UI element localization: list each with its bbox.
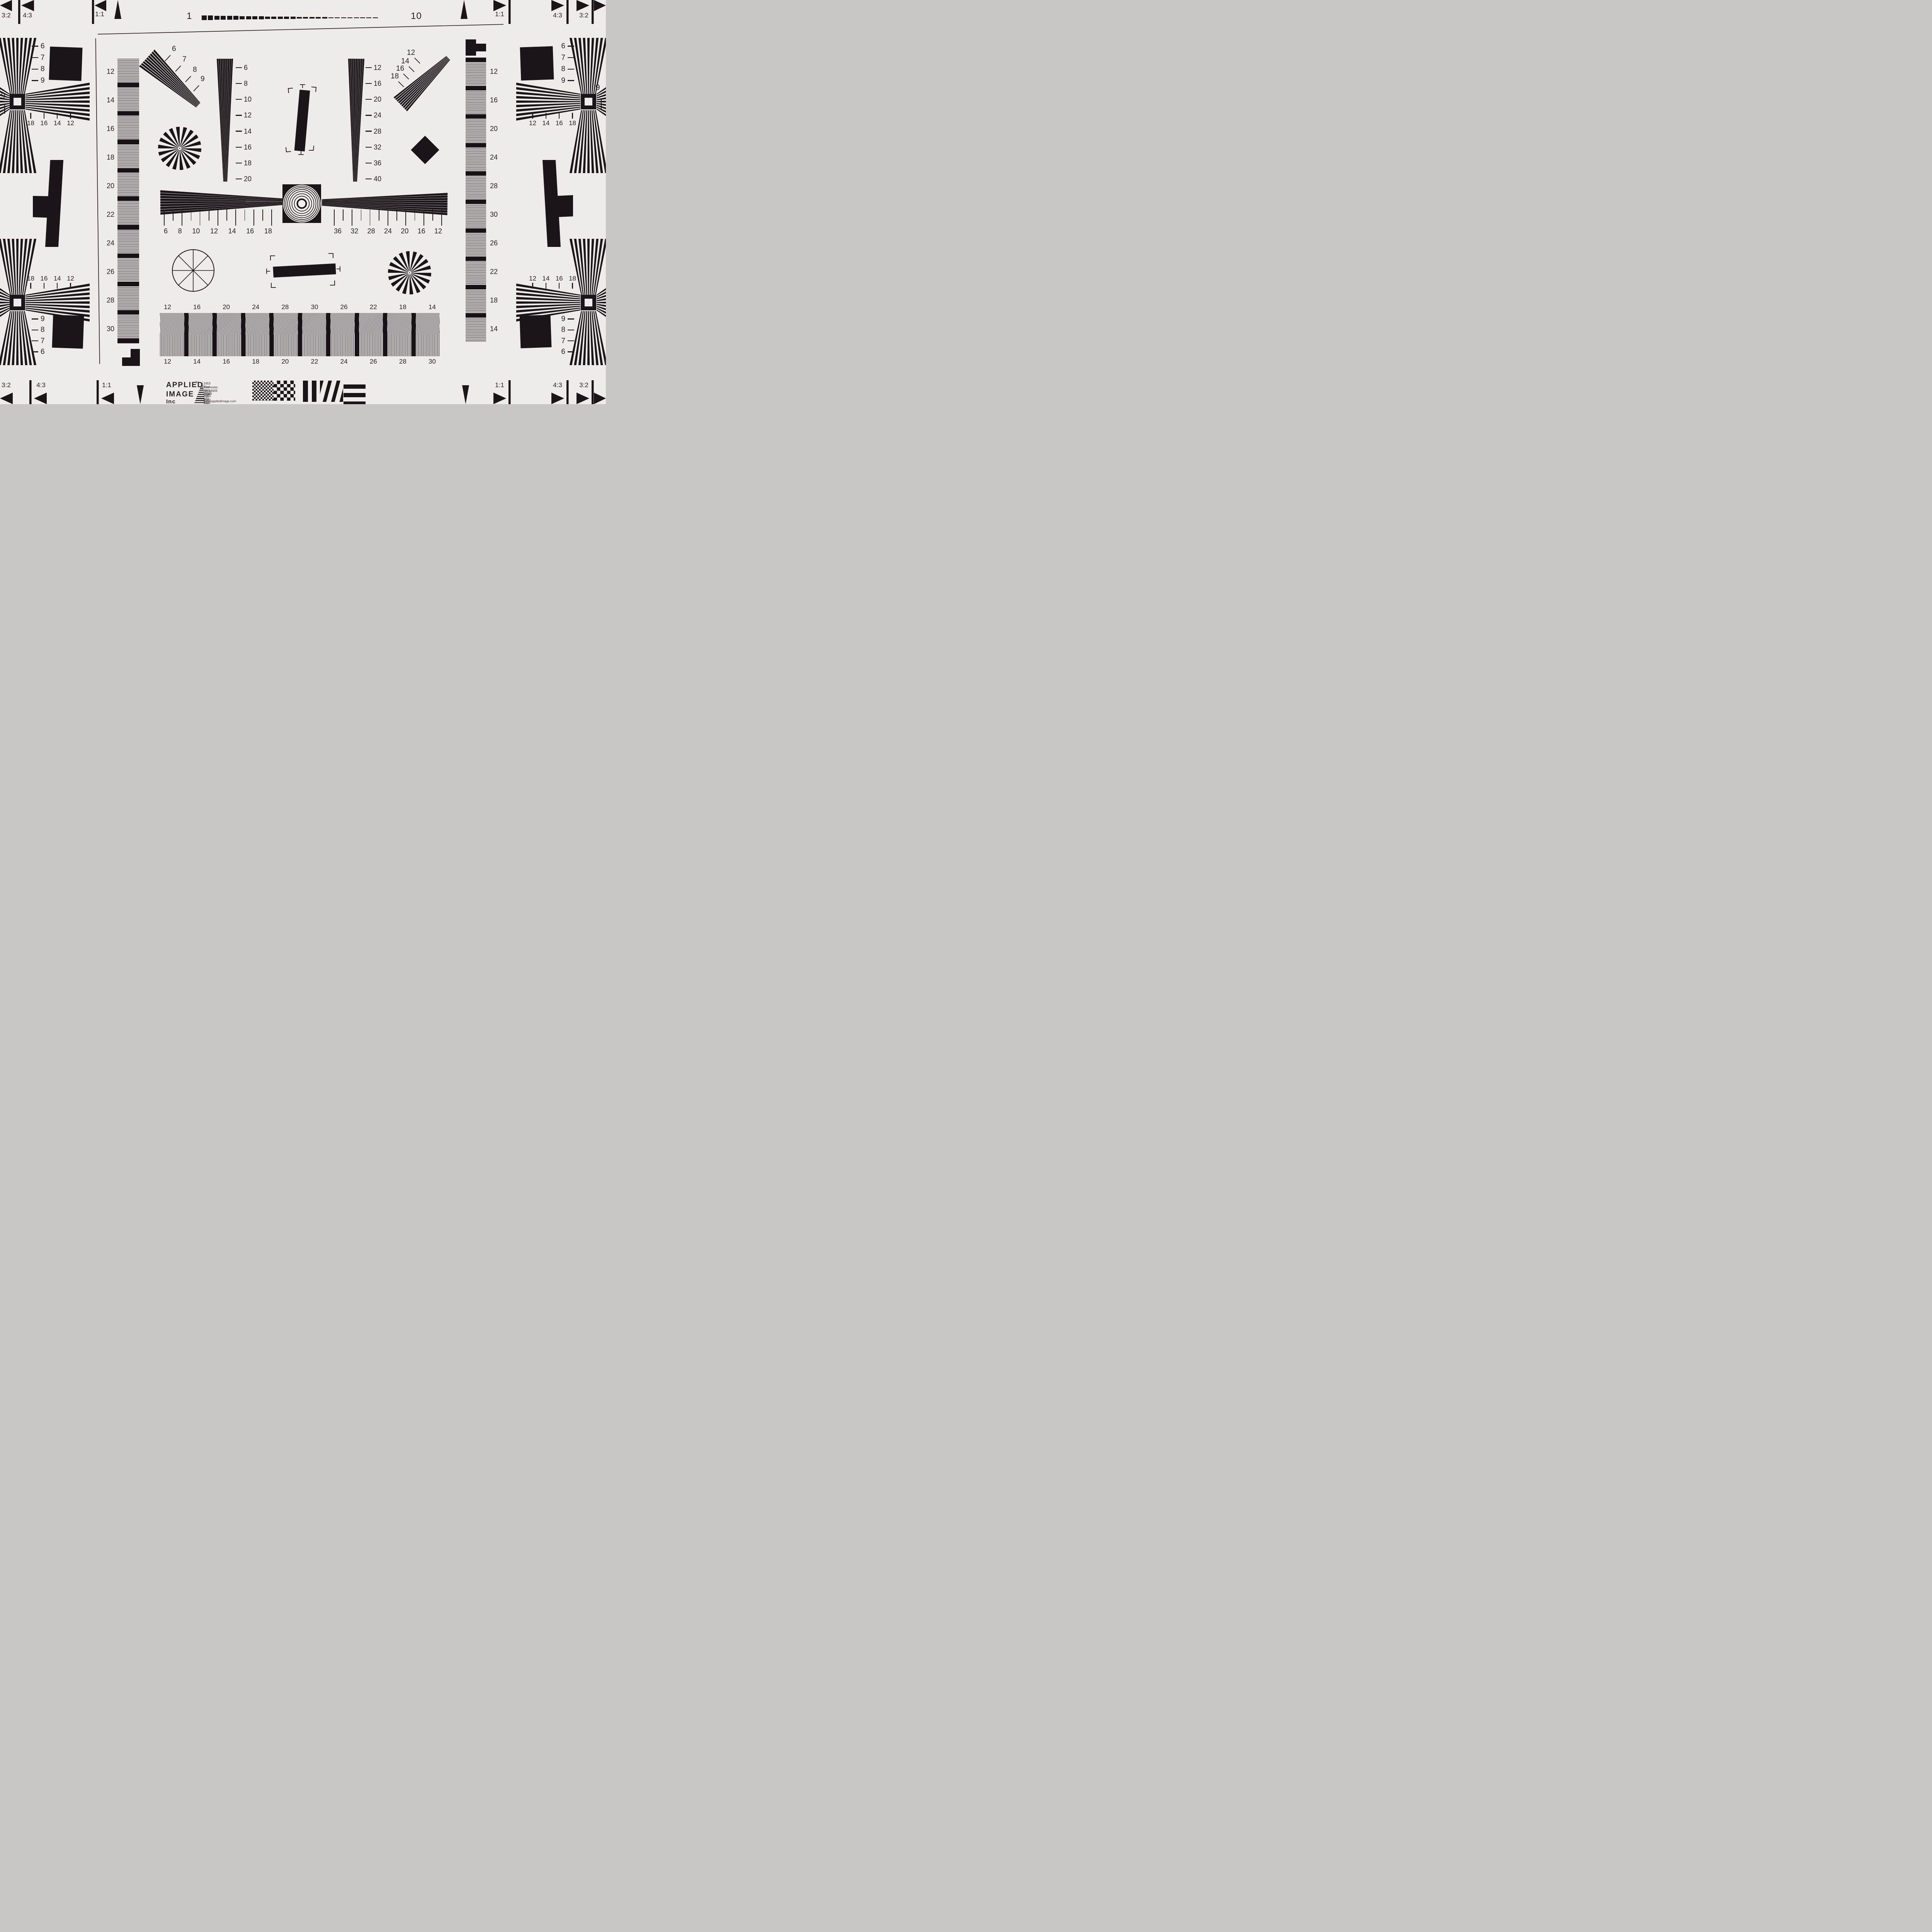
scale-number: 26 (490, 240, 505, 247)
scale-number: 14 (490, 325, 505, 332)
scale-dash (366, 83, 372, 84)
scale-dash (236, 67, 242, 68)
scale-dash (366, 131, 372, 131)
scale-diagonal-top-right: 12141618 (0, 0, 606, 404)
scale-number: 14 (193, 358, 201, 365)
scale-number: 22 (107, 211, 114, 218)
scale-number: 16 (418, 228, 425, 235)
scale-number: 12 (434, 228, 442, 235)
scale-number: 28 (374, 128, 381, 135)
scale-number: 28 (490, 182, 505, 189)
scale-number: 14 (107, 97, 114, 104)
scale-dash (236, 115, 242, 116)
website-url: www.appliedimage.com (204, 400, 236, 403)
scale-number: 16 (490, 97, 505, 104)
scale-number: 22 (490, 268, 505, 275)
scale-number: 14 (401, 58, 409, 65)
scale-dash (236, 163, 242, 163)
center-ruler-numbers-left: 681012141618 (164, 228, 272, 235)
scale-number: 24 (374, 112, 381, 119)
scale-number: 36 (374, 160, 381, 167)
center-ruler-numbers-right: 36322824201612 (334, 228, 442, 235)
scale-right-wedge: 1216202428323640 (366, 64, 385, 182)
scale-number: 16 (193, 304, 201, 310)
scale-number: 20 (107, 182, 114, 189)
scale-number: 20 (223, 304, 230, 310)
scale-number: 28 (399, 358, 406, 365)
strip-labels-right: 12162024283026221814 (490, 68, 505, 332)
scale-number: 18 (391, 73, 399, 80)
registered-mark: ® (196, 381, 198, 384)
scale-number: 18 (399, 304, 406, 310)
scale-dash (236, 131, 242, 131)
scale-number: 16 (107, 125, 114, 132)
scale-number: 28 (367, 228, 375, 235)
scale-dash (236, 99, 242, 100)
scale-number: 12 (374, 64, 381, 71)
scale-number: 32 (350, 228, 358, 235)
scale-number: 26 (370, 358, 377, 365)
scale-number: 12 (407, 49, 415, 56)
scale-number: 12 (164, 358, 171, 365)
strip-labels-bottom-top: 12162024283026221814 (164, 304, 436, 310)
scale-number: 18 (107, 154, 114, 161)
scale-dash (366, 115, 372, 116)
scale-number: 22 (370, 304, 377, 310)
scale-dash (236, 147, 242, 148)
scale-number: 18 (244, 160, 252, 167)
scale-number: 8 (178, 228, 182, 235)
scale-number: 24 (340, 358, 348, 365)
scale-number: 6 (164, 228, 168, 235)
company-name-line2: IMAGE (166, 391, 194, 398)
scale-number: 14 (228, 228, 236, 235)
scale-number: 18 (490, 297, 505, 304)
scale-number: 12 (490, 68, 505, 75)
scale-dash (366, 67, 372, 68)
scale-number: 24 (107, 240, 114, 247)
resolution-test-chart: 1 10 3:24:31:1 1:14:33:2 3:24:31:1 1:14:… (0, 0, 606, 404)
scale-number: 12 (107, 68, 114, 75)
scale-left-wedge: 68101214161820 (236, 64, 255, 182)
scale-number: 12 (210, 228, 218, 235)
scale-number: 26 (107, 268, 114, 275)
scale-number: 10 (244, 96, 252, 103)
scale-number: 22 (311, 358, 318, 365)
scale-number: 6 (244, 64, 248, 71)
scale-number: 24 (384, 228, 392, 235)
scale-number: 12 (164, 304, 171, 310)
scale-number: 14 (429, 304, 436, 310)
scale-number: 14 (244, 128, 252, 135)
scale-number: 20 (281, 358, 289, 365)
scale-number: 24 (490, 154, 505, 161)
scale-number: 30 (311, 304, 318, 310)
scale-number: 24 (252, 304, 259, 310)
scale-dash (366, 99, 372, 100)
scale-number: 32 (374, 144, 381, 151)
scale-number: 18 (252, 358, 259, 365)
scale-number: 12 (244, 112, 252, 119)
scale-number: 16 (374, 80, 381, 87)
scale-number: 18 (264, 228, 272, 235)
scale-number: 20 (401, 228, 408, 235)
scale-number: 40 (374, 175, 381, 182)
company-name-line3: Inc (166, 399, 176, 404)
scale-dash (366, 147, 372, 148)
scale-dash (236, 179, 242, 179)
scale-number: 10 (192, 228, 200, 235)
scale-number: 36 (334, 228, 342, 235)
scale-number: 26 (340, 304, 348, 310)
scale-number: 16 (396, 65, 404, 72)
scale-number: 8 (244, 80, 248, 87)
scale-number: 20 (374, 96, 381, 103)
scale-number: 20 (244, 175, 252, 182)
scale-number: 16 (246, 228, 254, 235)
scale-number: 30 (107, 325, 114, 332)
scale-number: 30 (490, 211, 505, 218)
scale-number: 20 (490, 125, 505, 132)
strip-labels-left: 12141618202224262830 (99, 68, 114, 332)
scale-number: 16 (223, 358, 230, 365)
scale-number: 28 (281, 304, 289, 310)
scale-dash (366, 179, 372, 179)
scale-number: 30 (429, 358, 436, 365)
strip-labels-bottom-bottom: 12141618202224262830 (164, 358, 436, 365)
scale-dash (366, 163, 372, 163)
scale-number: 28 (107, 297, 114, 304)
scale-dash (236, 83, 242, 84)
scale-number: 16 (244, 144, 252, 151)
